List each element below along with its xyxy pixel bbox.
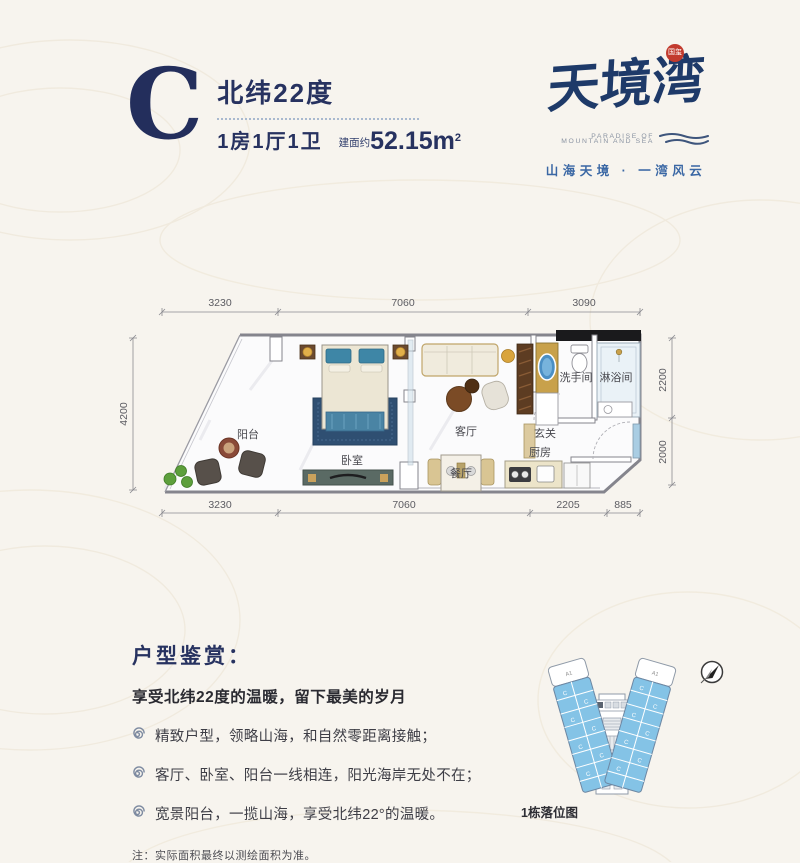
bullet-item: 精致户型，领略山海，和自然零距离接触； [132, 725, 537, 746]
bullet-item: 宽景阳台，一揽山海，享受北纬22°的温暖。 [132, 803, 537, 824]
dim-right-2: 2000 [657, 440, 669, 464]
area-prefix-label: 建面约 [339, 135, 371, 150]
area-superscript: 2 [455, 132, 461, 144]
swirl-bullet-icon [132, 804, 146, 818]
kitchen-fixtures [505, 461, 590, 488]
description-heading: 户型鉴赏： [132, 640, 537, 670]
site-plan-caption: 1栋落位图 [521, 805, 578, 820]
wave-strokes-icon [658, 132, 710, 146]
dim-bottom-1: 3230 [208, 499, 232, 511]
bullet-text: 精致户型，领略山海，和自然零距离接触； [155, 725, 436, 746]
unit-type-title: 北纬22度 [217, 73, 461, 110]
bullet-item: 客厅、卧室、阳台一线相连，阳光海岸无处不在； [132, 764, 537, 785]
label-washroom: 洗手间 [560, 370, 593, 384]
wardrobe [517, 344, 533, 414]
toilet [571, 345, 588, 353]
description-note: 注：实际面积最终以测绘面积为准。 [132, 847, 537, 863]
area-value: 52.15m [370, 130, 455, 154]
unit-type-specs: 1房1厅1卫 建面约 52.15m 2 [217, 125, 461, 154]
label-living: 客厅 [455, 424, 477, 438]
floorplan-brochure-page: { "page": { "background": "#f7f4ee" }, "… [0, 0, 800, 862]
tv-console [303, 470, 393, 485]
label-bedroom: 卧室 [341, 453, 363, 467]
brand-logo: 天境湾 国玺 PARADISE OF MOUNTAIN AND SEA 山海天境… [536, 46, 716, 179]
dim-bottom-4: 885 [614, 499, 632, 511]
bullet-text: 客厅、卧室、阳台一线相连，阳光海岸无处不在； [155, 764, 481, 785]
label-entry: 玄关 [534, 426, 556, 440]
dim-top-2: 7060 [391, 297, 415, 309]
brand-seal-stamp: 国玺 [666, 44, 684, 62]
entry-glass-door [633, 424, 640, 458]
description-subheading: 享受北纬22度的温暖，留下最美的岁月 [132, 685, 537, 707]
dim-left: 4200 [118, 402, 130, 426]
area-group: 建面约 52.15m 2 [339, 130, 461, 154]
label-dining: 餐厅 [450, 466, 472, 480]
unit-type-header: C 北纬22度 1房1厅1卫 建面约 52.15m 2 [126, 60, 461, 154]
unit-type-letter: C [126, 60, 201, 154]
swirl-bullet-icon [132, 726, 146, 740]
floor-plan: 3230 7060 3090 3230 7060 2205 885 4200 2… [118, 290, 684, 526]
label-balcony: 阳台 [237, 427, 259, 441]
label-shower: 淋浴间 [600, 371, 633, 384]
dim-bottom-2: 7060 [392, 499, 416, 511]
dim-top-3: 3090 [572, 297, 596, 309]
unit-description: 户型鉴赏： 享受北纬22度的温暖，留下最美的岁月 精致户型，领略山海，和自然零距… [132, 640, 537, 863]
lintel-beam [556, 330, 641, 341]
brand-tagline: 山海天境 · 一湾风云 [536, 160, 716, 179]
brand-logo-wrap: 天境湾 国玺 [536, 46, 716, 138]
bullet-text: 宽景阳台，一揽山海，享受北纬22°的温暖。 [155, 803, 444, 824]
dotted-divider [217, 118, 419, 120]
unit-type-info: 北纬22度 1房1厅1卫 建面约 52.15m 2 [217, 60, 461, 154]
dim-bottom-3: 2205 [556, 499, 580, 511]
building-site-plan: A1 C C C C C C C A1 C C C C C C C 1栋落位图 [512, 638, 732, 833]
brand-english-line2: MOUNTAIN AND SEA [536, 137, 654, 148]
room-count-label: 1房1厅1卫 [217, 125, 322, 154]
dim-top-1: 3230 [208, 297, 232, 309]
label-kitchen: 厨房 [529, 446, 551, 459]
compass-icon [701, 662, 723, 684]
dim-right-1: 2200 [657, 368, 669, 392]
swirl-bullet-icon [132, 765, 146, 779]
